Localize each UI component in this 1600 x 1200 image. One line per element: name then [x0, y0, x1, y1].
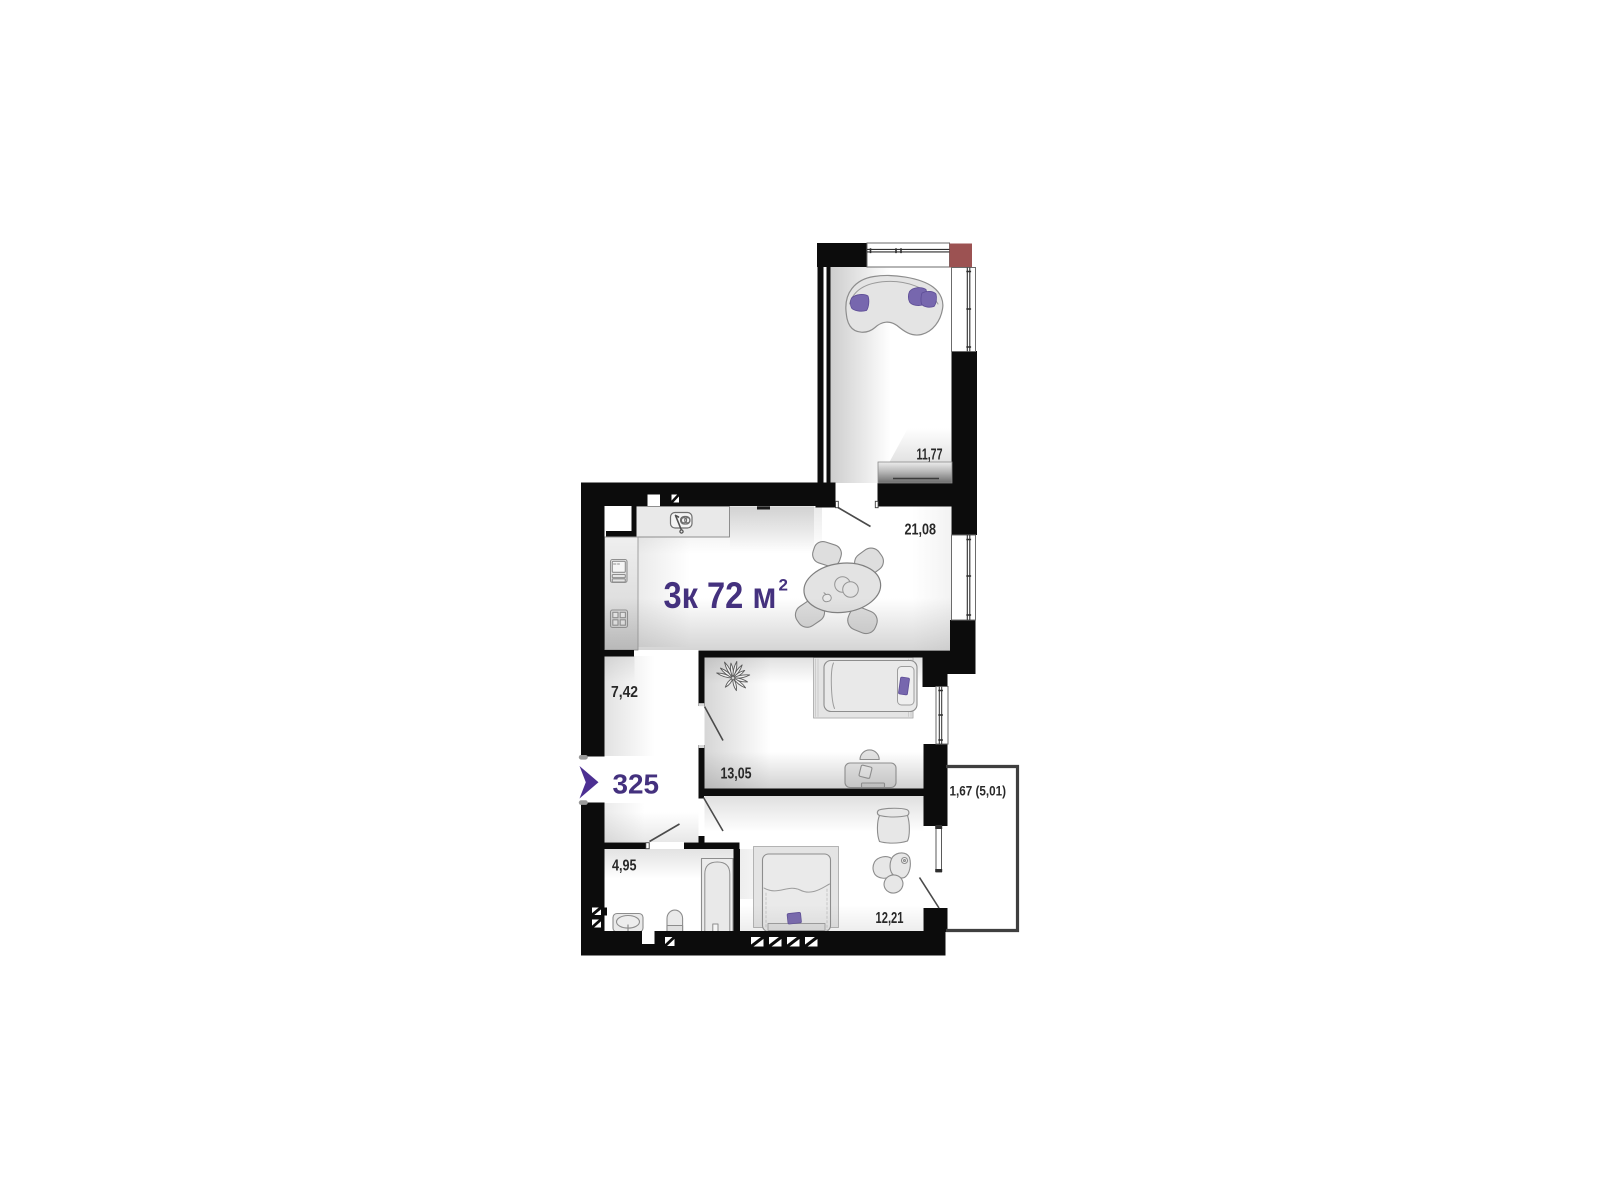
- svg-text:1,67 (5,01): 1,67 (5,01): [950, 784, 1007, 799]
- svg-text:2: 2: [779, 576, 788, 595]
- svg-text:4,95: 4,95: [612, 858, 637, 875]
- svg-text:3к 72 м: 3к 72 м: [664, 574, 777, 616]
- svg-text:13,05: 13,05: [721, 766, 752, 783]
- svg-text:325: 325: [613, 769, 660, 800]
- svg-text:12,21: 12,21: [876, 910, 904, 927]
- svg-text:7,42: 7,42: [611, 684, 638, 701]
- svg-text:21,08: 21,08: [905, 522, 937, 539]
- svg-text:11,77: 11,77: [917, 447, 943, 464]
